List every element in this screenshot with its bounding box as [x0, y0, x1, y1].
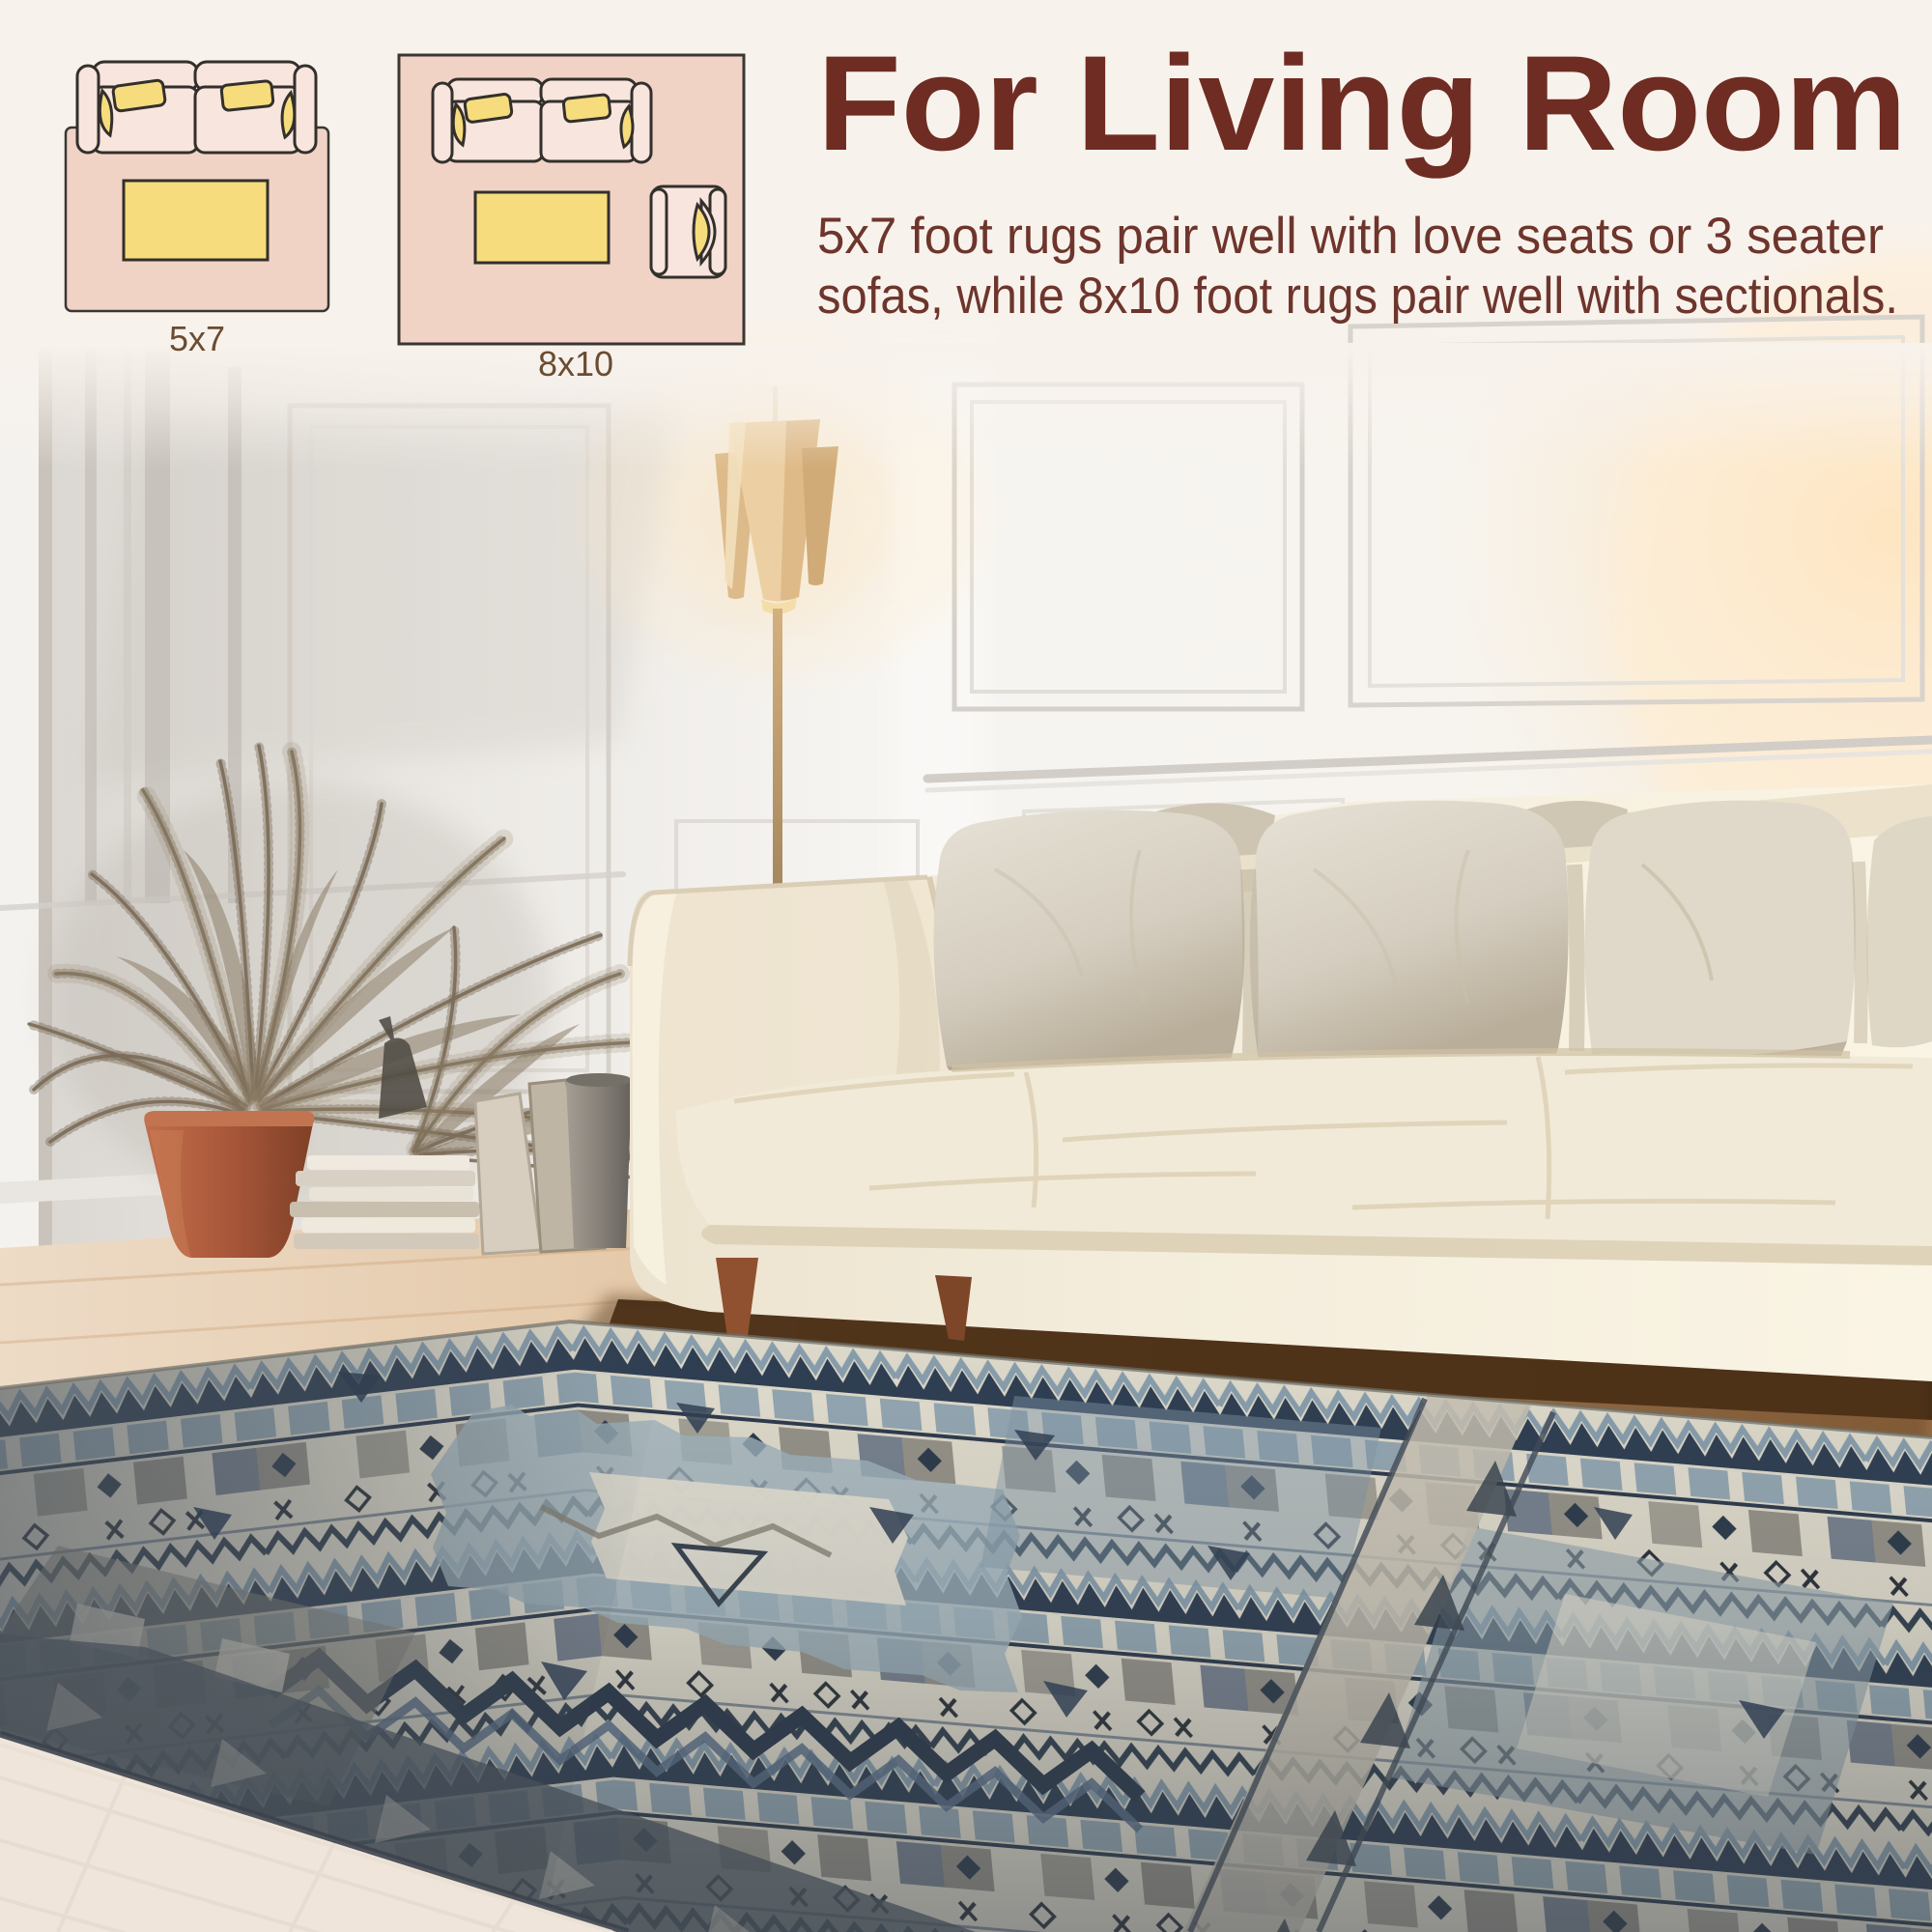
svg-text:sofas, while 8x10 foot rugs pa: sofas, while 8x10 foot rugs pair well wi… [817, 268, 1898, 325]
svg-text:5x7: 5x7 [169, 319, 225, 358]
svg-text:For Living Room: For Living Room [817, 27, 1907, 179]
svg-text:8x10: 8x10 [538, 344, 613, 384]
svg-text:5x7 foot rugs pair well with l: 5x7 foot rugs pair well with love seats … [817, 208, 1884, 265]
